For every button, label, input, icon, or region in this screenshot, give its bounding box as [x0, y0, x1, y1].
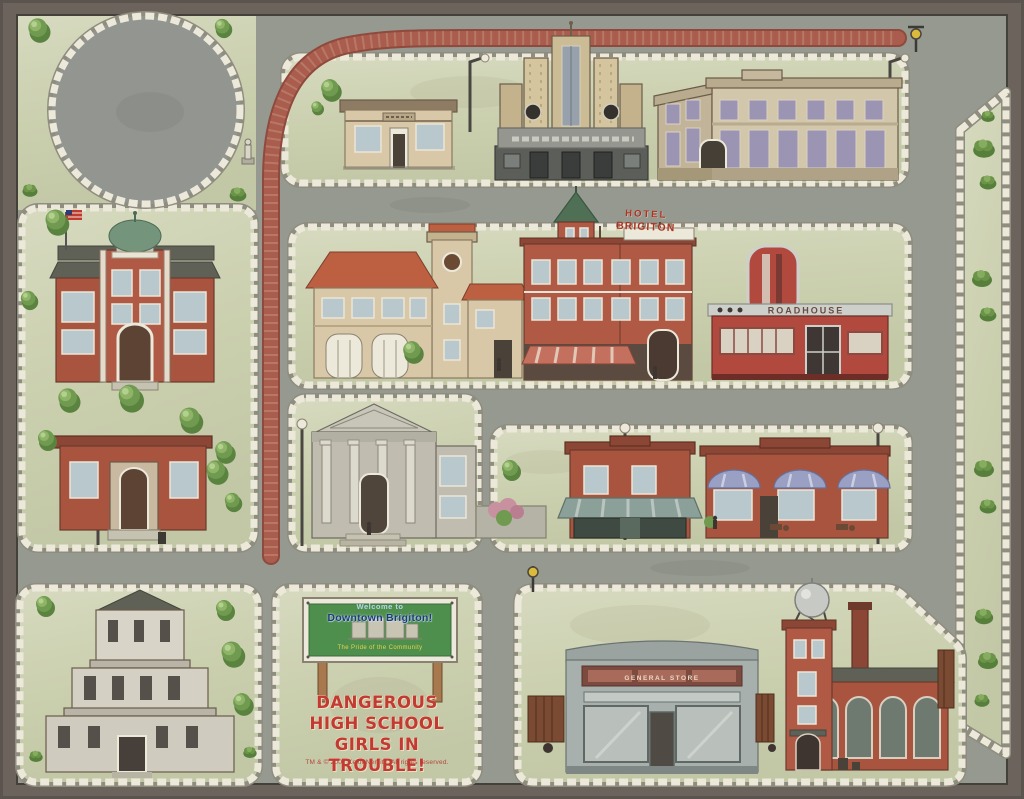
game-title-line2: High School	[284, 713, 470, 734]
small-shop-building[interactable]	[340, 100, 457, 170]
general-store-sign-text: GENERAL STORE	[624, 675, 699, 682]
diner-sign-text: ROADHOUSE	[768, 306, 845, 316]
welcome-sign-line1: Welcome to	[309, 600, 451, 611]
game-title-line3: Girls in Trouble!	[284, 734, 470, 776]
welcome-billboard-text: Welcome to Downtown Brigiton! The Pride …	[309, 600, 451, 654]
copyright-line: TM & © 2007 Keith Nemitz. All rights res…	[284, 759, 470, 766]
library-building[interactable]	[54, 436, 212, 544]
awning-shop-building[interactable]	[558, 436, 702, 538]
game-title-line1: Dangerous	[284, 692, 470, 713]
welcome-sign-line2: Downtown Brigiton!	[309, 613, 451, 624]
cafe-building[interactable]	[700, 438, 890, 538]
general-store-building[interactable]: GENERAL STORE	[566, 641, 758, 774]
welcome-sign-tagline: The Pride of the Community	[309, 645, 451, 651]
traffic-circle	[52, 16, 240, 204]
town-map-illustration: ROADHOUSE	[0, 0, 1024, 799]
game-board-map: ROADHOUSE	[0, 0, 1024, 799]
